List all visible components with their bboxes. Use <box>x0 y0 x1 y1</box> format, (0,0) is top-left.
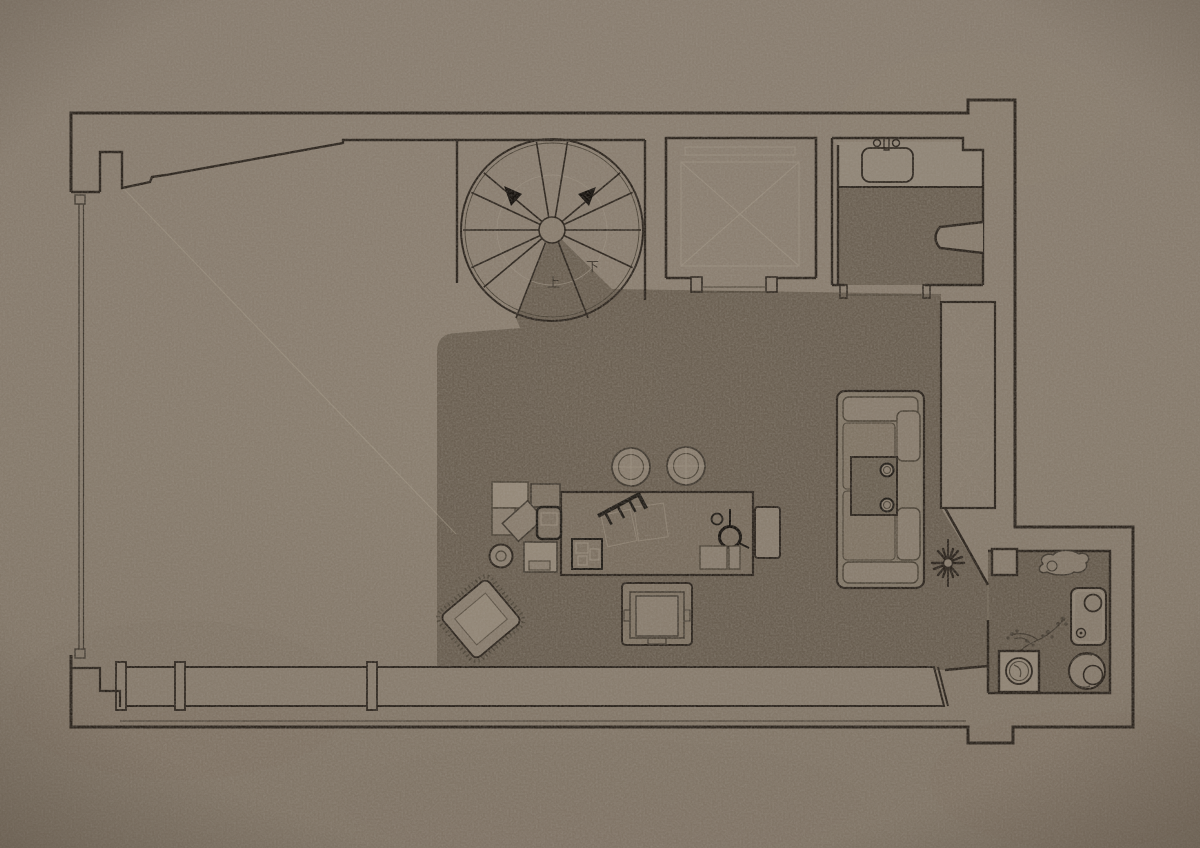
floor-plan-drawing: 上 下 <box>0 0 1200 848</box>
vignette <box>0 0 1200 848</box>
floor-plan-canvas: 上 下 <box>0 0 1200 848</box>
